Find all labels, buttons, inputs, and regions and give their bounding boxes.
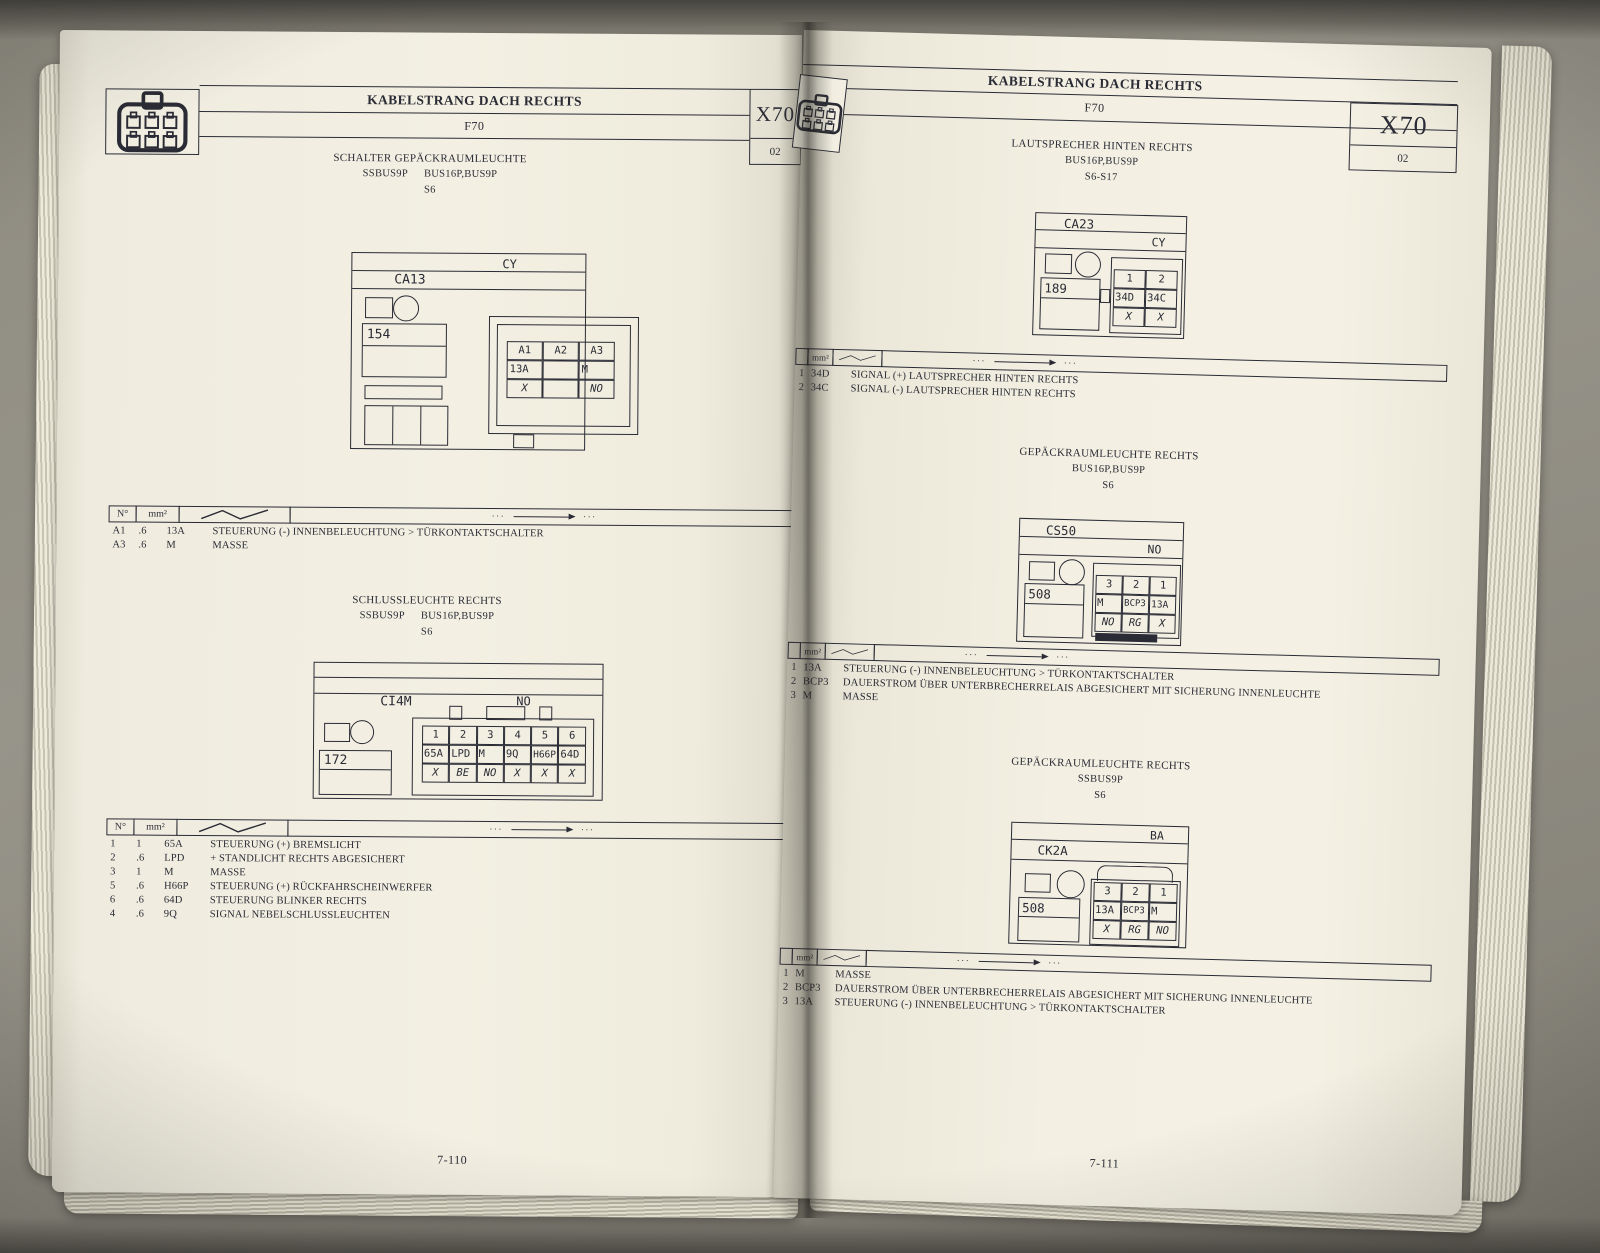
circuit-cell: 65A bbox=[422, 745, 449, 764]
col-header-function: ··· ··· bbox=[287, 820, 796, 841]
pin-cell: A3 bbox=[579, 342, 615, 361]
component-divider bbox=[1025, 603, 1083, 606]
color-cell: X bbox=[1112, 307, 1144, 327]
component-number: 508 bbox=[1022, 900, 1045, 916]
bus-codes: BUS16P,BUS9P bbox=[424, 169, 497, 181]
latch-box bbox=[1025, 873, 1051, 893]
circuit-cell: 34D bbox=[1113, 288, 1145, 308]
harness-code: F70 bbox=[1084, 100, 1105, 116]
direction-arrow-icon bbox=[511, 825, 573, 834]
circuit-code: BCP3 bbox=[803, 675, 843, 690]
circuit-cell: 64D bbox=[558, 745, 585, 764]
circuit-cell: LPD bbox=[449, 745, 476, 764]
wire-size: .6 bbox=[138, 539, 166, 553]
dots: ··· bbox=[965, 650, 979, 659]
wire-size: .6 bbox=[138, 525, 166, 539]
circuit-description: SIGNAL NEBELSCHLUSSLEUCHTEN bbox=[210, 908, 796, 926]
pin-cell: 3 bbox=[1093, 882, 1121, 902]
wire-size: 1 bbox=[136, 838, 164, 852]
circuit-cell: 13A bbox=[1149, 595, 1176, 615]
wiring-table-schlussleuchte: N° mm² ··· ··· 1 1 65A STEUERUNG (+) BRE… bbox=[106, 818, 797, 926]
band-line bbox=[314, 693, 602, 696]
color-cell: RG bbox=[1121, 614, 1148, 634]
pin-no: A1 bbox=[108, 524, 138, 538]
zone-label: CY bbox=[1151, 235, 1165, 249]
pin-grid: A1 A2 A3 13A M X NO bbox=[506, 341, 614, 399]
zone-label: NO bbox=[1147, 542, 1161, 556]
left-page: KABELSTRANG DACH RECHTS F70 X70 02 SCHAL… bbox=[52, 30, 802, 1197]
wire-size: .6 bbox=[136, 894, 164, 908]
latch-box bbox=[324, 723, 350, 742]
pin-no: 3 bbox=[778, 995, 794, 1009]
table-rows: A1 .6 13A STEUERUNG (-) INNENBELEUCHTUNG… bbox=[108, 522, 798, 557]
pin-cell: A1 bbox=[507, 341, 543, 360]
pin-no: 3 bbox=[106, 865, 136, 879]
direction-arrow-icon bbox=[986, 651, 1048, 662]
pin-no: 1 bbox=[795, 367, 811, 381]
color-cell bbox=[542, 379, 578, 398]
circuit-cell: M bbox=[1095, 594, 1122, 614]
connector-diagram-ci4m: CI4M NO 172 1 2 3 4 5 6 65A LPD M 9Q H66… bbox=[313, 662, 604, 801]
circuit-code: H66P bbox=[164, 880, 210, 894]
wire-size: 1 bbox=[136, 866, 164, 880]
connector-family: SSBUS9P bbox=[363, 168, 408, 179]
wire-zigzag-icon bbox=[830, 645, 870, 659]
section-ref: S6 bbox=[149, 181, 711, 201]
wire-size: .6 bbox=[136, 852, 164, 866]
section-ref: S6 bbox=[146, 623, 708, 643]
connector-label: CK2A bbox=[1037, 842, 1067, 858]
circuit-cell: BCP3 bbox=[1121, 902, 1149, 922]
seal-circle bbox=[1075, 251, 1102, 278]
connector-label: CA23 bbox=[1064, 216, 1094, 232]
right-page: KABELSTRANG DACH RECHTS F70 X70 02 LAUTS… bbox=[773, 30, 1491, 1216]
terminal-box bbox=[364, 405, 448, 446]
col-header-mm2: mm² bbox=[800, 642, 826, 660]
component-number: 172 bbox=[324, 753, 348, 768]
circuit-cell: 9Q bbox=[504, 745, 531, 764]
connector-diagram-ck2a: BA CK2A 508 3 2 1 13A BCP3 M X RG NO bbox=[1008, 822, 1189, 949]
pin-grid: 1 2 3 4 5 6 65A LPD M 9Q H66P 64D X BE N… bbox=[422, 726, 586, 784]
col-header-mm2: mm² bbox=[792, 948, 818, 966]
pin-cell: 2 bbox=[1122, 576, 1149, 596]
circuit-description: MASSE bbox=[212, 539, 798, 557]
dots: ··· bbox=[581, 826, 595, 835]
color-cell: X bbox=[504, 764, 531, 783]
link-notch bbox=[1100, 289, 1110, 303]
connector-label: CI4M bbox=[380, 694, 411, 709]
pin-no: A3 bbox=[108, 538, 138, 552]
dots: ··· bbox=[972, 357, 986, 366]
wire-zigzag-icon bbox=[193, 508, 277, 522]
circuit-code: 9Q bbox=[164, 908, 210, 922]
band-line bbox=[352, 288, 585, 291]
harness-title: KABELSTRANG DACH RECHTS bbox=[988, 73, 1203, 95]
terminal-divider bbox=[420, 407, 421, 445]
circuit-cell bbox=[543, 360, 579, 379]
wiring-table-lautsprecher: mm² ··· ··· 1 34D SIGNAL (+) LAUTSPRECHE… bbox=[794, 348, 1447, 412]
harness-title-row: KABELSTRANG DACH RECHTS bbox=[199, 85, 749, 116]
circuit-cell: H66P bbox=[531, 745, 558, 764]
color-cell: BE bbox=[449, 764, 476, 783]
seal-circle bbox=[1059, 559, 1086, 586]
pin-no: 2 bbox=[787, 675, 803, 689]
connector-diagram-ca23: CA23 CY 189 1 2 34D 34C X X bbox=[1032, 212, 1187, 339]
pin-no: 1 bbox=[106, 837, 136, 851]
section-gepaeckraumleuchte-1: GEPÄCKRAUMLEUCHTE RECHTS BUS16P,BUS9P S6 bbox=[792, 438, 1425, 503]
color-cell: X bbox=[422, 764, 449, 783]
circuit-cell: 13A bbox=[1093, 901, 1121, 921]
circuit-code: M bbox=[166, 539, 212, 553]
component-divider bbox=[1041, 297, 1099, 300]
wire-zigzag-icon bbox=[190, 821, 274, 835]
harness-code: F70 bbox=[464, 118, 484, 133]
circuit-code: 13A bbox=[166, 525, 212, 539]
circuit-code: LPD bbox=[164, 852, 210, 866]
dots: ··· bbox=[489, 825, 503, 834]
col-header-mm2: mm² bbox=[133, 819, 177, 836]
circuit-code: 34C bbox=[810, 381, 850, 396]
dots: ··· bbox=[957, 956, 971, 965]
band-line bbox=[352, 270, 585, 273]
pin-no: 6 bbox=[106, 893, 136, 907]
col-header-wire bbox=[825, 643, 875, 661]
circuit-cell: 13A bbox=[507, 360, 543, 379]
direction-arrow-icon bbox=[978, 957, 1040, 968]
col-header-function: ··· ··· bbox=[290, 507, 799, 528]
circuit-code: 64D bbox=[164, 894, 210, 908]
harness-title: KABELSTRANG DACH RECHTS bbox=[367, 92, 582, 109]
pin-cell: 1 bbox=[1149, 576, 1176, 596]
component-box: 189 bbox=[1039, 277, 1100, 331]
pin-no: 2 bbox=[779, 981, 795, 995]
wire-size: .6 bbox=[136, 880, 164, 894]
component-box: 172 bbox=[319, 750, 392, 796]
circuit-cell: M bbox=[579, 361, 615, 380]
pin-cell: 1 bbox=[1149, 883, 1177, 903]
wire-size: .6 bbox=[136, 908, 164, 922]
pin-cell: 2 bbox=[449, 726, 476, 745]
color-cell: NO bbox=[1148, 921, 1176, 941]
col-header-wire bbox=[179, 506, 291, 524]
sheet-code: X70 bbox=[1350, 103, 1457, 148]
circuit-cell: M bbox=[476, 745, 503, 764]
circuit-code: 13A bbox=[794, 995, 834, 1010]
page-number: 7-110 bbox=[407, 1152, 497, 1168]
dots: ··· bbox=[492, 512, 506, 521]
component-divider bbox=[363, 345, 446, 347]
pin-cell: 6 bbox=[559, 726, 586, 745]
color-cell: X bbox=[506, 379, 542, 398]
housing-tab bbox=[513, 434, 534, 448]
page-header: KABELSTRANG DACH RECHTS F70 bbox=[199, 85, 749, 141]
connector-diagram-cs50: CS50 NO 508 3 2 1 M BCP3 13A NO RG X bbox=[1016, 518, 1184, 646]
circuit-cell: 34C bbox=[1145, 289, 1177, 309]
circuit-code: M bbox=[802, 689, 842, 704]
color-cell: X bbox=[531, 764, 558, 783]
component-divider bbox=[320, 769, 391, 771]
latch-box bbox=[1045, 253, 1073, 274]
pin-cell: A2 bbox=[543, 341, 579, 360]
latch-box bbox=[365, 297, 393, 318]
band-line bbox=[1036, 229, 1186, 234]
col-header-mm2: mm² bbox=[807, 348, 833, 366]
section-schlussleuchte: SCHLUSSLEUCHTE RECHTS SSBUS9PBUS16P,BUS9… bbox=[146, 591, 708, 643]
pin-no: 1 bbox=[779, 967, 795, 981]
connector-family: SSBUS9P bbox=[360, 610, 405, 621]
pin-cell: 1 bbox=[422, 726, 449, 745]
photo-of-open-manual: { "book": { "left_page": { "header": {"t… bbox=[0, 0, 1600, 1253]
direction-arrow-icon bbox=[994, 357, 1056, 368]
circuit-code: M bbox=[164, 866, 210, 880]
circuit-code: 13A bbox=[803, 661, 843, 676]
wiring-table-gepaeckraumleuchte-1: mm² ··· ··· 1 13A STEUERUNG (-) INNENBEL… bbox=[786, 642, 1439, 720]
color-cell: NO bbox=[578, 380, 614, 399]
section-lautsprecher: LAUTSPRECHER HINTEN RECHTS BUS16P,BUS9P … bbox=[800, 130, 1403, 194]
page-number: 7-111 bbox=[1064, 1155, 1144, 1172]
component-divider bbox=[1019, 916, 1079, 919]
band-line bbox=[314, 677, 602, 680]
terminal-strip bbox=[364, 385, 442, 400]
color-cell: RG bbox=[1120, 921, 1148, 941]
dots: ··· bbox=[583, 513, 597, 522]
connector-pictogram-box bbox=[105, 88, 199, 155]
component-number: 508 bbox=[1028, 586, 1051, 602]
zone-label: BA bbox=[1150, 828, 1164, 842]
wire-zigzag-icon bbox=[837, 351, 877, 365]
circuit-code: 65A bbox=[164, 838, 210, 852]
circuit-cell: M bbox=[1149, 902, 1177, 922]
pin-grid: 1 2 34D 34C X X bbox=[1112, 269, 1177, 328]
connector-label: CS50 bbox=[1046, 523, 1076, 539]
component-box: 508 bbox=[1017, 897, 1080, 943]
pin-no: 4 bbox=[106, 907, 136, 921]
color-cell: X bbox=[1148, 614, 1175, 634]
wire-zigzag-icon bbox=[822, 951, 862, 965]
direction-arrow-icon bbox=[513, 512, 575, 521]
band-line bbox=[1020, 536, 1183, 541]
band-line bbox=[1011, 859, 1187, 865]
pin-cell: 4 bbox=[504, 726, 531, 745]
bus-codes: BUS16P,BUS9P bbox=[421, 611, 494, 623]
housing-base-bar bbox=[1095, 633, 1157, 643]
table-rows: 1 1 65A STEUERUNG (+) BREMSLICHT 2 .6 LP… bbox=[106, 835, 797, 926]
color-cell: X bbox=[1092, 920, 1120, 940]
harness-code-row: F70 bbox=[199, 112, 749, 141]
color-cell: X bbox=[558, 764, 585, 783]
pin-no: 5 bbox=[106, 879, 136, 893]
pin-cell: 2 bbox=[1145, 270, 1177, 290]
pin-cell: 3 bbox=[477, 726, 504, 745]
section-gepaeckraumleuchte-2: GEPÄCKRAUMLEUCHTE RECHTS SSBUS9P S6 bbox=[784, 748, 1417, 813]
color-cell: NO bbox=[1094, 613, 1121, 633]
seal-circle bbox=[1056, 870, 1085, 899]
circuit-code: M bbox=[795, 967, 835, 982]
terminal-divider bbox=[392, 406, 393, 444]
dots: ··· bbox=[1056, 653, 1070, 662]
zone-label: CY bbox=[502, 257, 517, 271]
section-schalter-gepaeckraumleuchte: SCHALTER GEPÄCKRAUMLEUCHTE SSBUS9PBUS16P… bbox=[149, 149, 711, 201]
pin-cell: 3 bbox=[1095, 575, 1122, 595]
col-header-pin: N° bbox=[106, 818, 134, 835]
pin-no: 2 bbox=[794, 381, 810, 395]
circuit-code: BCP3 bbox=[795, 981, 835, 996]
connector-icon bbox=[106, 89, 198, 154]
seal-circle bbox=[393, 295, 419, 321]
wiring-table-schalter: N° mm² ··· ··· A1 .6 13A STEUERUNG (-) I… bbox=[108, 505, 798, 557]
latch-box bbox=[1029, 561, 1055, 581]
col-header-pin: N° bbox=[109, 505, 137, 522]
col-header-wire bbox=[832, 349, 882, 367]
component-number: 154 bbox=[367, 327, 391, 342]
seal-circle bbox=[350, 720, 374, 744]
col-header-mm2: mm² bbox=[136, 506, 180, 523]
component-box: 154 bbox=[362, 323, 447, 378]
component-number: 189 bbox=[1044, 280, 1067, 296]
circuit-cell: BCP3 bbox=[1122, 595, 1149, 615]
pin-no: 1 bbox=[787, 661, 803, 675]
circuit-code: 34D bbox=[811, 367, 851, 382]
dots: ··· bbox=[1048, 959, 1062, 968]
pin-grid: 3 2 1 13A BCP3 M X RG NO bbox=[1092, 882, 1177, 941]
connector-diagram-ca13: CY CA13 154 A1 A2 A3 13A M X NO bbox=[350, 252, 586, 451]
wiring-table-gepaeckraumleuchte-2: mm² ··· ··· 1 M MASSE 2 BCP3 DAUERSTROM … bbox=[778, 948, 1431, 1026]
pin-grid: 3 2 1 M BCP3 13A NO RG X bbox=[1094, 575, 1176, 634]
color-cell: NO bbox=[476, 764, 503, 783]
pin-cell: 5 bbox=[531, 726, 558, 745]
col-header-wire bbox=[817, 949, 867, 967]
pin-cell: 2 bbox=[1121, 883, 1149, 903]
color-cell: X bbox=[1144, 308, 1176, 328]
dots: ··· bbox=[1064, 359, 1078, 368]
pin-no: 2 bbox=[106, 851, 136, 865]
pin-cell: 1 bbox=[1113, 269, 1145, 289]
pin-no: 3 bbox=[786, 689, 802, 703]
connector-label: CA13 bbox=[394, 272, 425, 287]
col-header-wire bbox=[176, 819, 288, 837]
component-box: 508 bbox=[1023, 583, 1084, 639]
